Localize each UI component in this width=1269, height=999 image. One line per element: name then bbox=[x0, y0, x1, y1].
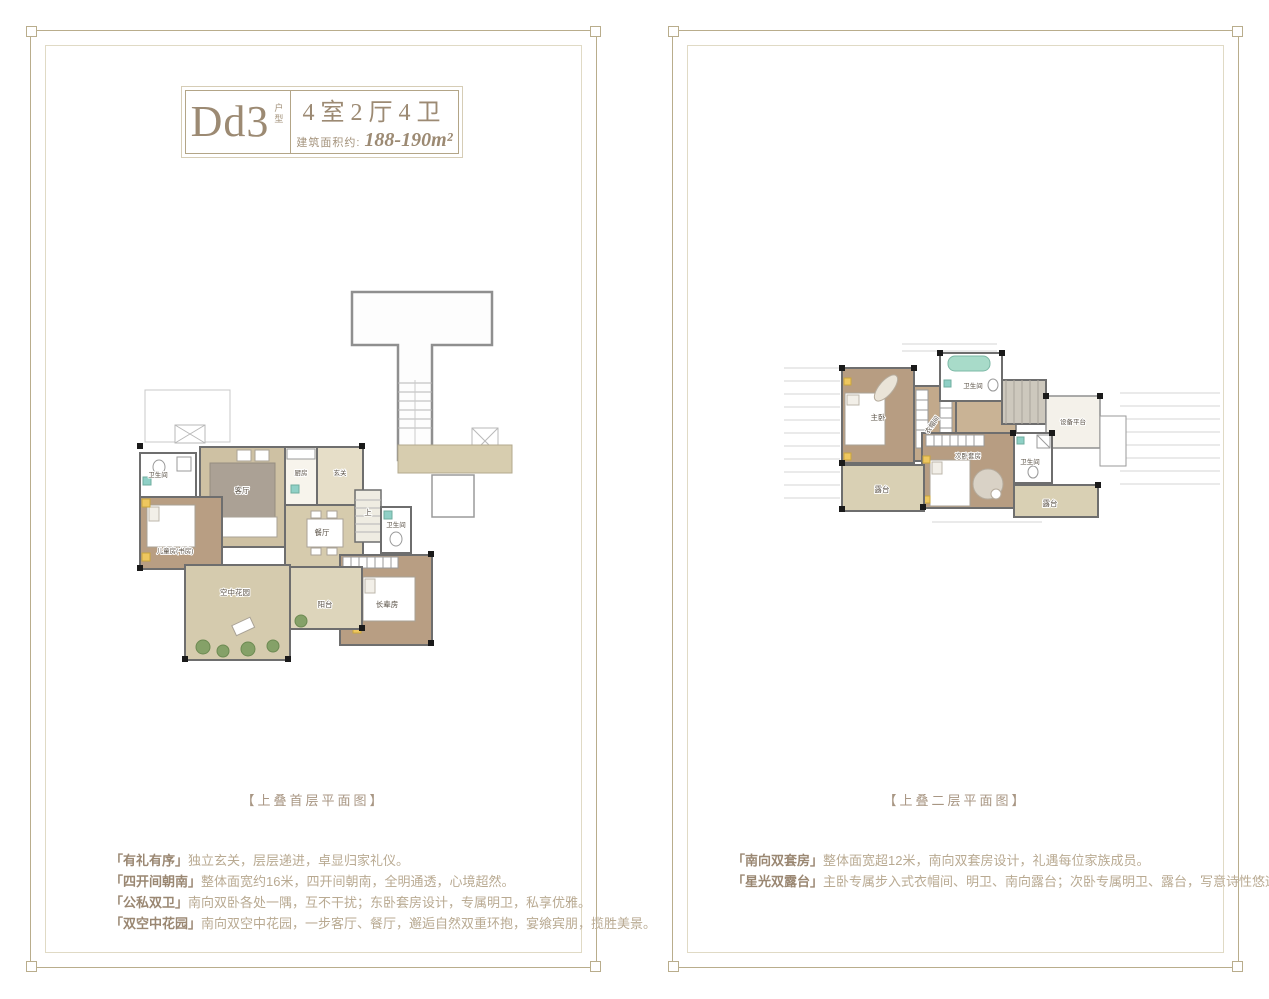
feature-line: 「有礼有序」独立玄关，层层递进，卓显归家礼仪。 bbox=[110, 850, 580, 871]
nightstand bbox=[142, 553, 150, 561]
pillow bbox=[932, 462, 942, 474]
room-label-bath-top: 卫生间 bbox=[963, 381, 983, 390]
kitchen-counter bbox=[287, 449, 315, 459]
unit-code-cell: Dd3 户型 bbox=[186, 91, 291, 153]
feature-text: 整体面宽约16米，四开间朝南，全明通透，心境超然。 bbox=[201, 874, 514, 889]
room-label-bath2: 卫生间 bbox=[386, 520, 406, 529]
room-label-bath1: 卫生间 bbox=[148, 470, 168, 479]
unit-code: Dd3 bbox=[191, 100, 270, 144]
room-label-stair-up: 上 bbox=[364, 508, 372, 517]
sink bbox=[944, 380, 951, 387]
stool bbox=[991, 489, 1001, 499]
left-panel: Dd3 户型 4室2厅4卫 建筑面积约: 188-190m² bbox=[30, 30, 597, 968]
frame-corner-ornament bbox=[1232, 26, 1243, 37]
second-floor-caption: 【上叠二层平面图】 bbox=[672, 790, 1239, 809]
feature-text: 整体面宽超12米，南向双套房设计，礼遇每位家族成员。 bbox=[823, 853, 1149, 868]
frame-corner-ornament bbox=[26, 26, 37, 37]
frame-corner-ornament bbox=[26, 961, 37, 972]
unit-spec: 4室2厅4卫 bbox=[303, 92, 447, 127]
stairwell bbox=[1002, 380, 1046, 424]
feature-text: 南向双空中花园，一步客厅、餐厅，邂逅自然双重环抱，宴飨宾朋，揽胜美景。 bbox=[201, 916, 656, 931]
room-label-garden: 空中花园 bbox=[220, 587, 250, 597]
feature-tag: 「有礼有序」 bbox=[110, 853, 188, 868]
feature-line: 「四开间朝南」整体面宽约16米，四开间朝南，全明通透，心境超然。 bbox=[110, 871, 580, 892]
bathtub bbox=[948, 356, 990, 371]
toilet bbox=[390, 532, 402, 546]
unit-area-label: 建筑面积约: bbox=[296, 134, 360, 150]
left-features: 「有礼有序」独立玄关，层层递进，卓显归家礼仪。 「四开间朝南」整体面宽约16米，… bbox=[110, 850, 580, 934]
armchair bbox=[255, 450, 269, 461]
feature-tag: 「四开间朝南」 bbox=[110, 874, 201, 889]
feature-line: 「公私双卫」南向双卧各处一隅，互不干扰；东卧套房设计，专属明卫，私享优雅。 bbox=[110, 892, 580, 913]
room-label-terrace-right: 露台 bbox=[1043, 498, 1058, 508]
unit-area-value: 188-190m² bbox=[364, 129, 452, 152]
feature-line: 「星光双露台」主卧专属步入式衣帽间、明卫、南向露台；次卧专属明卫、露台，写意诗性… bbox=[732, 871, 1232, 892]
room-label-balcony: 阳台 bbox=[318, 599, 333, 609]
unit-area: 建筑面积约: 188-190m² bbox=[296, 129, 452, 152]
feature-line: 「南向双套房」整体面宽超12米，南向双套房设计，礼遇每位家族成员。 bbox=[732, 850, 1232, 871]
room-label-master: 主卧 bbox=[871, 412, 886, 422]
frame-corner-ornament bbox=[590, 26, 601, 37]
room-label-elder: 长辈房 bbox=[376, 599, 399, 609]
armchair bbox=[237, 450, 251, 461]
balcony-plant bbox=[295, 615, 307, 627]
feature-text: 独立玄关，层层递进，卓显归家礼仪。 bbox=[188, 853, 409, 868]
room-label-bath-right: 卫生间 bbox=[1020, 457, 1040, 466]
room-label-second: 次卧套房 bbox=[955, 451, 981, 460]
right-panel: 主卧 衣帽间 卫生间 设备平台 次卧套房 卫生间 露台 露台 【上叠二层平面图】… bbox=[672, 30, 1239, 968]
nightstand bbox=[923, 456, 930, 463]
entry-corridor bbox=[398, 445, 512, 473]
first-floor-plan: 卫生间 儿童房(书房) 客厅 厨房 玄关 餐厅 上 卫生间 长辈房 空中花园 阳… bbox=[115, 285, 515, 685]
exterior-stairwell bbox=[352, 292, 492, 460]
wardrobe bbox=[926, 435, 984, 446]
feature-tag: 「南向双套房」 bbox=[732, 853, 823, 868]
feature-line: 「双空中花园」南向双空中花园，一步客厅、餐厅，邂逅自然双重环抱，宴飨宾朋，揽胜美… bbox=[110, 913, 580, 934]
sink bbox=[1017, 437, 1024, 444]
shower bbox=[177, 457, 191, 471]
second-floor-plan: 主卧 衣帽间 卫生间 设备平台 次卧套房 卫生间 露台 露台 bbox=[782, 338, 1222, 528]
unit-code-suffix: 户型 bbox=[272, 103, 285, 125]
right-features: 「南向双套房」整体面宽超12米，南向双套房设计，礼遇每位家族成员。 「星光双露台… bbox=[732, 850, 1232, 892]
feature-tag: 「双空中花园」 bbox=[110, 916, 201, 931]
unit-title-block: Dd3 户型 4室2厅4卫 建筑面积约: 188-190m² bbox=[185, 90, 459, 154]
nightstand bbox=[844, 378, 851, 385]
room-label-kids: 儿童房(书房) bbox=[157, 546, 194, 555]
feature-tag: 「星光双露台」 bbox=[732, 874, 823, 889]
sink bbox=[384, 511, 392, 519]
feature-text: 南向双卧各处一隅，互不干扰；东卧套房设计，专属明卫，私享优雅。 bbox=[188, 895, 591, 910]
feature-tag: 「公私双卫」 bbox=[110, 895, 188, 910]
first-floor-caption: 【上叠首层平面图】 bbox=[30, 790, 597, 809]
pillow bbox=[365, 579, 375, 593]
frame-corner-ornament bbox=[668, 961, 679, 972]
frame-corner-ornament bbox=[590, 961, 601, 972]
kitchen-sink bbox=[291, 485, 299, 493]
room-label-living: 客厅 bbox=[235, 485, 250, 495]
room-label-terrace-left: 露台 bbox=[875, 484, 890, 494]
frame-corner-ornament bbox=[668, 26, 679, 37]
room-label-kitchen: 厨房 bbox=[295, 468, 308, 477]
room-label-dining: 餐厅 bbox=[315, 528, 330, 537]
pillow bbox=[847, 395, 859, 405]
toilet bbox=[988, 379, 998, 391]
room-label-foyer: 玄关 bbox=[334, 468, 348, 477]
nightstand bbox=[142, 499, 150, 507]
nightstand bbox=[844, 453, 851, 460]
room-label-equip: 设备平台 bbox=[1060, 417, 1086, 426]
annex-outline bbox=[1100, 416, 1126, 466]
annex-room bbox=[432, 475, 474, 517]
toilet bbox=[1028, 466, 1038, 478]
pillow bbox=[149, 507, 159, 521]
feature-text: 主卧专属步入式衣帽间、明卫、南向露台；次卧专属明卫、露台，写意诗性悠远人生。 bbox=[823, 874, 1269, 889]
unit-spec-cell: 4室2厅4卫 建筑面积约: 188-190m² bbox=[291, 91, 458, 153]
frame-corner-ornament bbox=[1232, 961, 1243, 972]
